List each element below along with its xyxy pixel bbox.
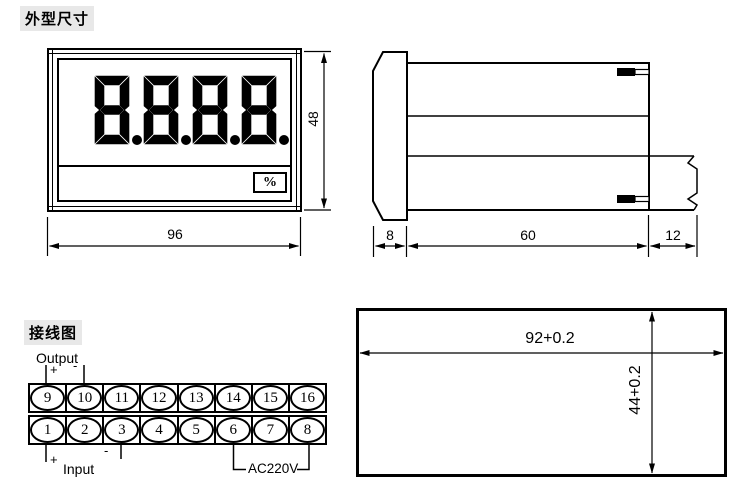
meter-faceplate: % — [57, 58, 292, 202]
outline-section-title: 外型尺寸 — [20, 6, 94, 31]
dim-label-bezel-8: 8 — [378, 227, 402, 243]
case-body — [407, 63, 649, 210]
terminal-cell: 7 — [251, 417, 288, 443]
terminal-ellipse: 5 — [179, 417, 214, 443]
terminal-ellipse: 7 — [253, 417, 288, 443]
terminal-row-bottom: 1 2 3 4 5 6 7 8 — [28, 415, 327, 445]
mounting-clip-bottom-screw — [635, 197, 649, 202]
terminal-cell: 11 — [102, 385, 139, 411]
terminal-row-top: 9 10 11 12 13 14 15 16 — [28, 383, 327, 413]
ac-wire-right — [297, 444, 309, 470]
input-label: Input — [63, 461, 94, 477]
terminal-number: 10 — [77, 390, 92, 407]
terminal-cell: 9 — [30, 385, 65, 411]
terminal-ellipse: 11 — [104, 385, 139, 411]
terminal-cell: 13 — [177, 385, 214, 411]
percent-label: % — [263, 175, 277, 191]
terminal-ellipse: 10 — [67, 385, 102, 411]
terminal-number: 9 — [44, 390, 52, 407]
terminal-ellipse: 4 — [141, 417, 176, 443]
ac-wire-left — [234, 444, 247, 470]
terminal-cell: 1 — [30, 417, 65, 443]
terminal-number: 14 — [226, 390, 241, 407]
terminal-cell: 14 — [214, 385, 251, 411]
terminal-number: 13 — [189, 390, 204, 407]
bezel-edge-line — [49, 53, 300, 54]
terminal-number: 15 — [263, 390, 278, 407]
display-divider — [59, 165, 290, 167]
terminal-ellipse: 8 — [290, 417, 325, 443]
dim-label-width-96: 96 — [159, 226, 191, 242]
terminal-number: 11 — [115, 390, 129, 407]
mounting-clip-top — [617, 68, 635, 76]
bezel-edge-line — [52, 50, 53, 210]
terminal-ellipse: 16 — [290, 385, 325, 411]
terminal-cell: 10 — [65, 385, 102, 411]
terminal-number: 4 — [155, 422, 163, 439]
terminal-number: 2 — [81, 422, 89, 439]
terminal-cell: 2 — [65, 417, 102, 443]
bezel — [373, 52, 407, 220]
seven-segment-display — [59, 60, 290, 165]
terminal-ellipse: 13 — [179, 385, 214, 411]
terminal-cell: 3 — [102, 417, 139, 443]
mounting-clip-top-screw — [635, 70, 649, 75]
dim-label-terminal-12: 12 — [657, 227, 689, 243]
terminal-number: 5 — [192, 422, 200, 439]
dim-label-body-60: 60 — [512, 227, 544, 243]
terminal-ellipse: 9 — [30, 385, 65, 411]
terminal-ellipse: 15 — [253, 385, 288, 411]
output-minus-sign: - — [73, 358, 77, 373]
terminal-number: 16 — [300, 390, 315, 407]
terminal-cell: 16 — [288, 385, 325, 411]
break-line — [688, 156, 697, 210]
terminal-number: 1 — [44, 422, 52, 439]
terminal-ellipse: 3 — [104, 417, 139, 443]
terminal-ellipse: 2 — [67, 417, 102, 443]
input-plus-sign: + — [50, 452, 58, 467]
terminal-ellipse: 14 — [216, 385, 251, 411]
terminal-number: 8 — [304, 422, 312, 439]
terminal-cell: 5 — [177, 417, 214, 443]
terminal-cell: 15 — [251, 385, 288, 411]
mounting-clip-bottom — [617, 195, 635, 203]
panel-meter-datasheet: 外型尺寸 接线图 % 96 48 8 60 12 9 10 11 12 13 1… — [0, 0, 742, 487]
percent-indicator-box: % — [253, 172, 287, 193]
dim-label-cutout-height: 44+0.2 — [628, 355, 646, 425]
input-minus-sign: - — [104, 443, 108, 458]
terminal-ellipse: 6 — [216, 417, 251, 443]
output-plus-sign: + — [50, 362, 58, 377]
dim-label-height-48: 48 — [305, 104, 321, 134]
meter-side-view — [373, 52, 697, 220]
terminal-number: 7 — [267, 422, 275, 439]
dim-label-cutout-width: 92+0.2 — [505, 331, 595, 347]
bezel-edge-line — [49, 206, 300, 207]
terminal-cell: 12 — [139, 385, 176, 411]
terminal-cell: 6 — [214, 417, 251, 443]
ac220v-label: AC220V — [248, 461, 298, 476]
meter-front-view: % — [47, 48, 302, 212]
bezel-edge-line — [296, 50, 297, 210]
terminal-cell: 8 — [288, 417, 325, 443]
wiring-section-title: 接线图 — [24, 320, 82, 345]
terminal-number: 12 — [151, 390, 166, 407]
terminal-ellipse: 12 — [141, 385, 176, 411]
terminal-cell: 4 — [139, 417, 176, 443]
terminal-ellipse: 1 — [30, 417, 65, 443]
terminal-number: 3 — [118, 422, 126, 439]
terminal-number: 6 — [229, 422, 237, 439]
